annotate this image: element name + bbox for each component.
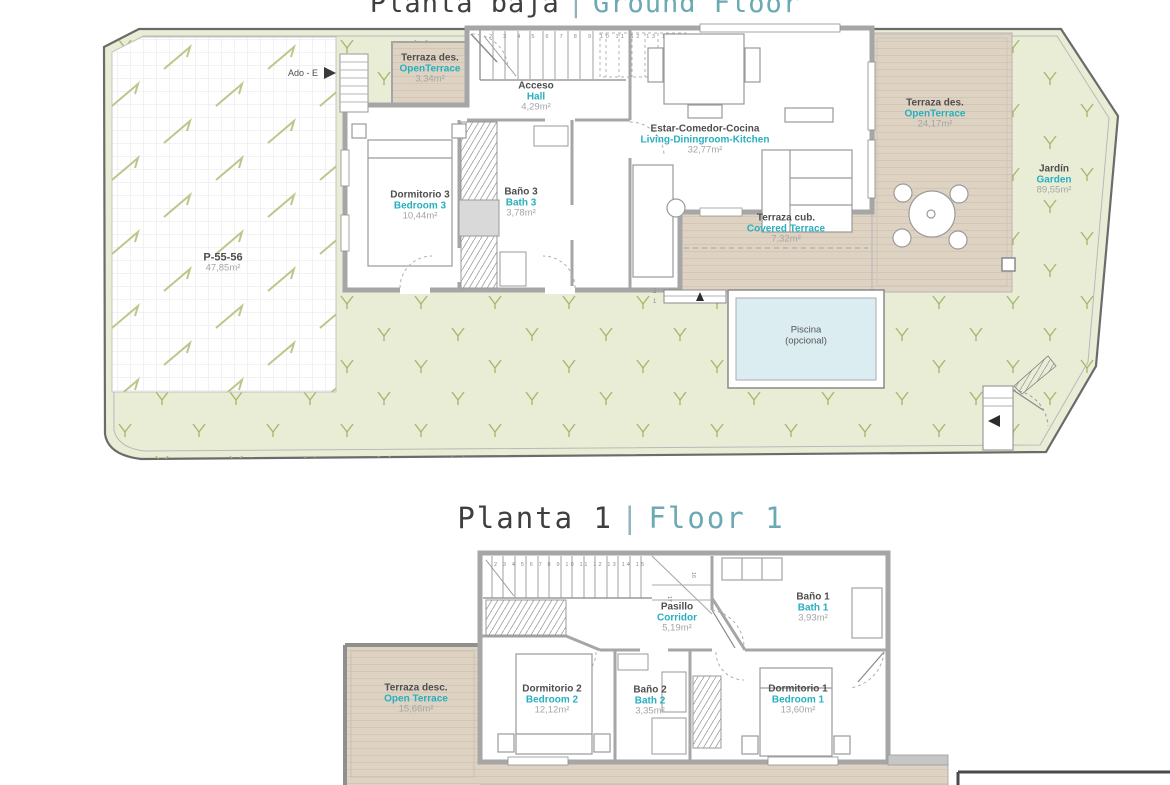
- ground-floor-title: Planta baja|Ground Floor: [370, 0, 800, 19]
- room-label-open-terrace-large: Terraza des. OpenTerrace 24,17m²: [905, 98, 966, 131]
- room-label-covered-terrace: Terraza cub. Covered Terrace 7,32m²: [747, 213, 825, 246]
- wall-extension: [888, 755, 948, 765]
- room-label-bath-2: Baño 2 Bath 2 3,35m²: [633, 685, 666, 718]
- garden-gate: [1002, 258, 1015, 271]
- ground-title-en: Ground Floor: [593, 0, 800, 19]
- open-terrace-large-area: [872, 33, 1012, 292]
- room-label-bedroom-2: Dormitorio 2 Bedroom 2 12,12m²: [522, 684, 581, 717]
- room-label-living: Estar-Comedor-Cocina Living-Diningroom-K…: [641, 124, 770, 157]
- room-label-bath-1: Baño 1 Bath 1 3,93m²: [796, 592, 829, 625]
- plan-graphics: 2 3 4 5 6 7 8 9 10 11 12 13 14 15 16: [0, 0, 1170, 785]
- room-label-corridor: Pasillo Corridor 5,19m²: [657, 602, 697, 635]
- first-title-en: Floor 1: [648, 501, 784, 535]
- pool-steps: 2 1: [653, 289, 726, 305]
- first-wardrobe: [486, 600, 566, 636]
- room-label-hall: Acceso Hall 4,29m²: [518, 81, 554, 114]
- title-separator: |: [568, 0, 585, 19]
- parking-area: [112, 37, 336, 392]
- first-stair-turn1: 16: [690, 572, 696, 578]
- room-label-garden: Jardín Garden 89,55m²: [1036, 164, 1071, 197]
- ground-title-es: Planta baja: [370, 0, 560, 19]
- pool-label: Piscina (opcional): [785, 325, 827, 346]
- first-title-es: Planta 1: [457, 501, 613, 535]
- room-label-first-open-terrace: Terraza desc. Open Terrace 15,66m²: [384, 683, 448, 716]
- floor-plan-page: 2 3 4 5 6 7 8 9 10 11 12 13 14 15 16: [0, 0, 1170, 785]
- wardrobe-block: [459, 200, 499, 236]
- first-floor-title: Planta 1|Floor 1: [457, 501, 784, 535]
- room-label-open-terrace-small: Terraza des. OpenTerrace 3,34m²: [400, 53, 461, 86]
- room-label-bedroom-1: Dormitorio 1 Bedroom 1 13,60m²: [768, 684, 827, 717]
- room-label-bath-3: Baño 3 Bath 3 3,78m²: [504, 187, 537, 220]
- stair-numbers-run1: 2 3 4 5 6 7 8 9: [489, 34, 591, 40]
- parking-label: P-55-56 47,85m²: [203, 252, 242, 275]
- first-floor-plan: 2 3 4 5 6 7 8 9 10 11 12 13 14 15 16 17: [345, 553, 1170, 785]
- bedroom1-wardrobe: [693, 676, 721, 748]
- adjacent-cut-block: [958, 772, 1170, 785]
- ground-floor-plan: 2 3 4 5 6 7 8 9 10 11 12 13 14 15 16: [104, 24, 1118, 459]
- title-separator: |: [621, 501, 640, 535]
- room-label-bedroom-3: Dormitorio 3 Bedroom 3 10,44m²: [390, 190, 449, 223]
- access-annotation: Ado - E: [288, 68, 318, 78]
